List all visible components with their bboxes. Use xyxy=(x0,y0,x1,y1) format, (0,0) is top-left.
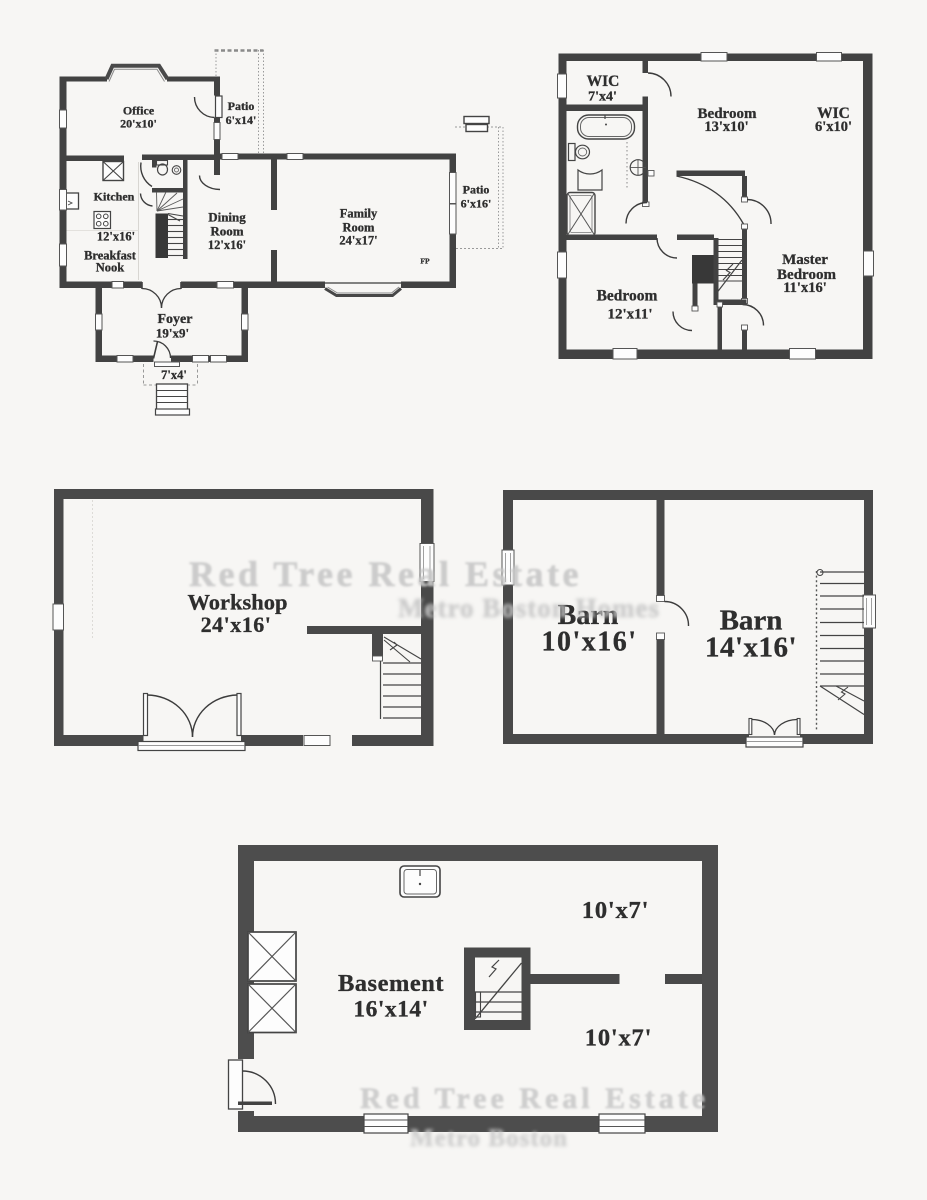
svg-text:10'x7': 10'x7' xyxy=(585,1025,652,1052)
svg-text:Red Tree Real Estate: Red Tree Real Estate xyxy=(360,1082,709,1115)
svg-text:Dining: Dining xyxy=(208,210,246,225)
svg-text:20'x10': 20'x10' xyxy=(120,117,157,131)
svg-text:Metro Boston: Metro Boston xyxy=(410,1125,568,1152)
svg-text:WIC: WIC xyxy=(587,73,620,90)
svg-text:Basement: Basement xyxy=(338,970,444,997)
svg-text:Red Tree Real Estate: Red Tree Real Estate xyxy=(189,554,582,594)
svg-text:FP: FP xyxy=(420,257,430,266)
svg-text:24'x16': 24'x16' xyxy=(201,612,272,637)
svg-text:Kitchen: Kitchen xyxy=(94,190,135,204)
svg-text:Metro Boston Homes: Metro Boston Homes xyxy=(398,593,660,623)
svg-text:12'x16': 12'x16' xyxy=(208,238,246,252)
svg-text:6'x16': 6'x16' xyxy=(461,197,492,211)
svg-text:7'x4': 7'x4' xyxy=(588,90,617,105)
svg-text:16'x14': 16'x14' xyxy=(353,997,428,1023)
svg-text:Patio: Patio xyxy=(228,99,255,113)
svg-text:10'x16': 10'x16' xyxy=(541,627,637,658)
svg-text:Patio: Patio xyxy=(463,183,490,197)
svg-text:Room: Room xyxy=(210,224,243,239)
svg-text:Room: Room xyxy=(343,221,376,235)
svg-text:12'x16': 12'x16' xyxy=(97,230,135,244)
svg-text:6'x14': 6'x14' xyxy=(226,113,257,127)
svg-text:7'x4': 7'x4' xyxy=(161,368,187,382)
svg-text:Master: Master xyxy=(782,252,828,268)
svg-text:10'x7': 10'x7' xyxy=(582,897,649,924)
svg-text:24'x17': 24'x17' xyxy=(339,234,377,248)
svg-text:11'x16': 11'x16' xyxy=(783,280,827,296)
svg-text:Bedroom: Bedroom xyxy=(597,288,658,305)
svg-text:Office: Office xyxy=(123,104,155,118)
svg-text:13'x10': 13'x10' xyxy=(704,119,748,135)
svg-text:Family: Family xyxy=(340,207,378,221)
svg-text:6'x10': 6'x10' xyxy=(815,119,852,135)
svg-text:14'x16': 14'x16' xyxy=(705,632,797,664)
svg-text:19'x9': 19'x9' xyxy=(156,326,189,341)
svg-text:Nook: Nook xyxy=(96,261,125,275)
svg-text:12'x11': 12'x11' xyxy=(607,307,652,323)
